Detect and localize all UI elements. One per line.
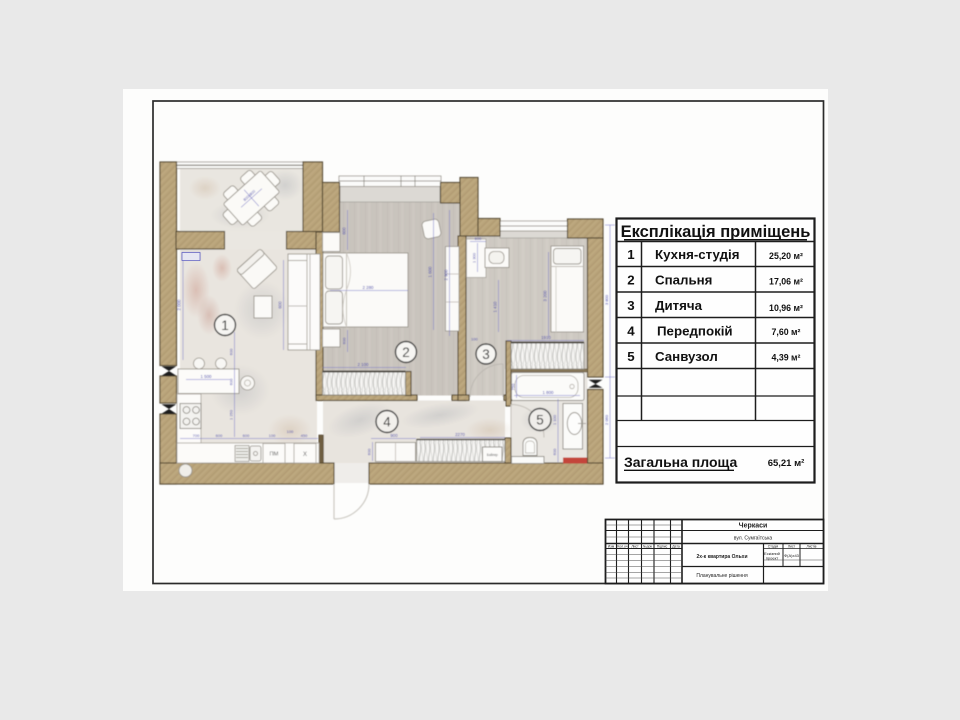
svg-text:Планувальне рішення: Планувальне рішення <box>696 573 748 579</box>
svg-text:600: 600 <box>475 236 482 241</box>
svg-text:1910: 1910 <box>541 335 551 340</box>
svg-text:1 100: 1 100 <box>552 414 557 425</box>
svg-text:Бойлер: Бойлер <box>487 453 498 457</box>
svg-text:2 000: 2 000 <box>177 299 182 311</box>
svg-text:600: 600 <box>341 337 346 344</box>
svg-text:2 100: 2 100 <box>358 362 370 367</box>
svg-text:750: 750 <box>510 383 515 390</box>
svg-text:1 250: 1 250 <box>228 409 233 420</box>
svg-text:Дата: Дата <box>672 544 680 548</box>
svg-text:3 800: 3 800 <box>604 294 609 305</box>
svg-text:100: 100 <box>287 429 294 434</box>
svg-text:600: 600 <box>216 433 223 438</box>
svg-text:Експлікація приміщень: Експлікація приміщень <box>621 223 811 241</box>
svg-text:Листів: Листів <box>807 545 817 549</box>
svg-text:5: 5 <box>627 349 635 364</box>
svg-text:4,39 м²: 4,39 м² <box>771 353 800 363</box>
svg-text:450: 450 <box>301 433 308 438</box>
svg-text:4: 4 <box>383 415 391 430</box>
svg-text:1 300: 1 300 <box>471 252 476 263</box>
svg-text:3 200: 3 200 <box>542 290 547 302</box>
svg-text:100: 100 <box>471 337 478 342</box>
svg-text:2270: 2270 <box>455 432 465 437</box>
svg-text:1 600: 1 600 <box>427 266 432 278</box>
svg-text:600: 600 <box>366 448 371 455</box>
svg-text:1 410: 1 410 <box>492 301 497 313</box>
svg-text:5: 5 <box>536 413 544 428</box>
svg-text:65,21 м²: 65,21 м² <box>768 458 805 469</box>
svg-text:ПМ: ПМ <box>270 452 279 458</box>
svg-text:17,06 м²: 17,06 м² <box>769 277 803 287</box>
svg-text:вул. Сумгаїтська: вул. Сумгаїтська <box>734 536 773 542</box>
svg-text:Спальня: Спальня <box>655 273 712 288</box>
svg-text:7,60 м²: 7,60 м² <box>771 327 800 337</box>
svg-text:Дитяча: Дитяча <box>655 298 703 313</box>
svg-text:600: 600 <box>228 378 233 385</box>
svg-text:25,20 м²: 25,20 м² <box>769 251 803 261</box>
svg-text:700: 700 <box>193 433 200 438</box>
svg-text:3: 3 <box>627 298 634 313</box>
svg-text:Кол.уч: Кол.уч <box>617 544 627 548</box>
svg-text:Стадія: Стадія <box>768 545 779 549</box>
svg-text:Лист: Лист <box>788 545 796 549</box>
svg-text:1 500: 1 500 <box>201 374 213 379</box>
svg-text:100: 100 <box>269 433 276 438</box>
svg-text:проект: проект <box>766 556 779 561</box>
svg-text:Підпис: Підпис <box>657 544 668 548</box>
svg-text:4: 4 <box>627 324 635 339</box>
svg-text:2 060: 2 060 <box>604 414 609 425</box>
svg-text:Кухня-студія: Кухня-студія <box>655 247 739 262</box>
svg-text:Ф(А)х43: Ф(А)х43 <box>784 553 800 558</box>
svg-text:2х-к квартира Ольхи: 2х-к квартира Ольхи <box>696 554 747 560</box>
svg-text:3: 3 <box>482 347 490 362</box>
svg-text:600: 600 <box>243 433 250 438</box>
svg-text:2 280: 2 280 <box>363 285 375 290</box>
svg-text:1: 1 <box>627 247 635 262</box>
svg-text:№док: №док <box>643 544 653 548</box>
svg-text:Санвузол: Санвузол <box>655 349 718 364</box>
svg-text:Черкаси: Черкаси <box>739 523 768 530</box>
svg-text:10,96 м²: 10,96 м² <box>769 303 803 313</box>
svg-text:X: X <box>303 452 307 458</box>
svg-text:600: 600 <box>277 301 282 309</box>
svg-text:2 900: 2 900 <box>443 269 448 281</box>
svg-text:2: 2 <box>402 345 410 360</box>
svg-text:Загальна площа: Загальна площа <box>624 454 738 470</box>
svg-text:600: 600 <box>341 227 346 235</box>
svg-text:Изм: Изм <box>608 544 615 548</box>
svg-text:Лист: Лист <box>631 544 639 548</box>
svg-text:600: 600 <box>552 448 557 455</box>
svg-text:Передпокій: Передпокій <box>657 324 733 339</box>
svg-text:900: 900 <box>390 433 398 438</box>
svg-text:2: 2 <box>627 273 634 288</box>
svg-text:1: 1 <box>221 318 229 333</box>
svg-text:1 800: 1 800 <box>543 390 555 395</box>
svg-text:600: 600 <box>228 348 233 355</box>
